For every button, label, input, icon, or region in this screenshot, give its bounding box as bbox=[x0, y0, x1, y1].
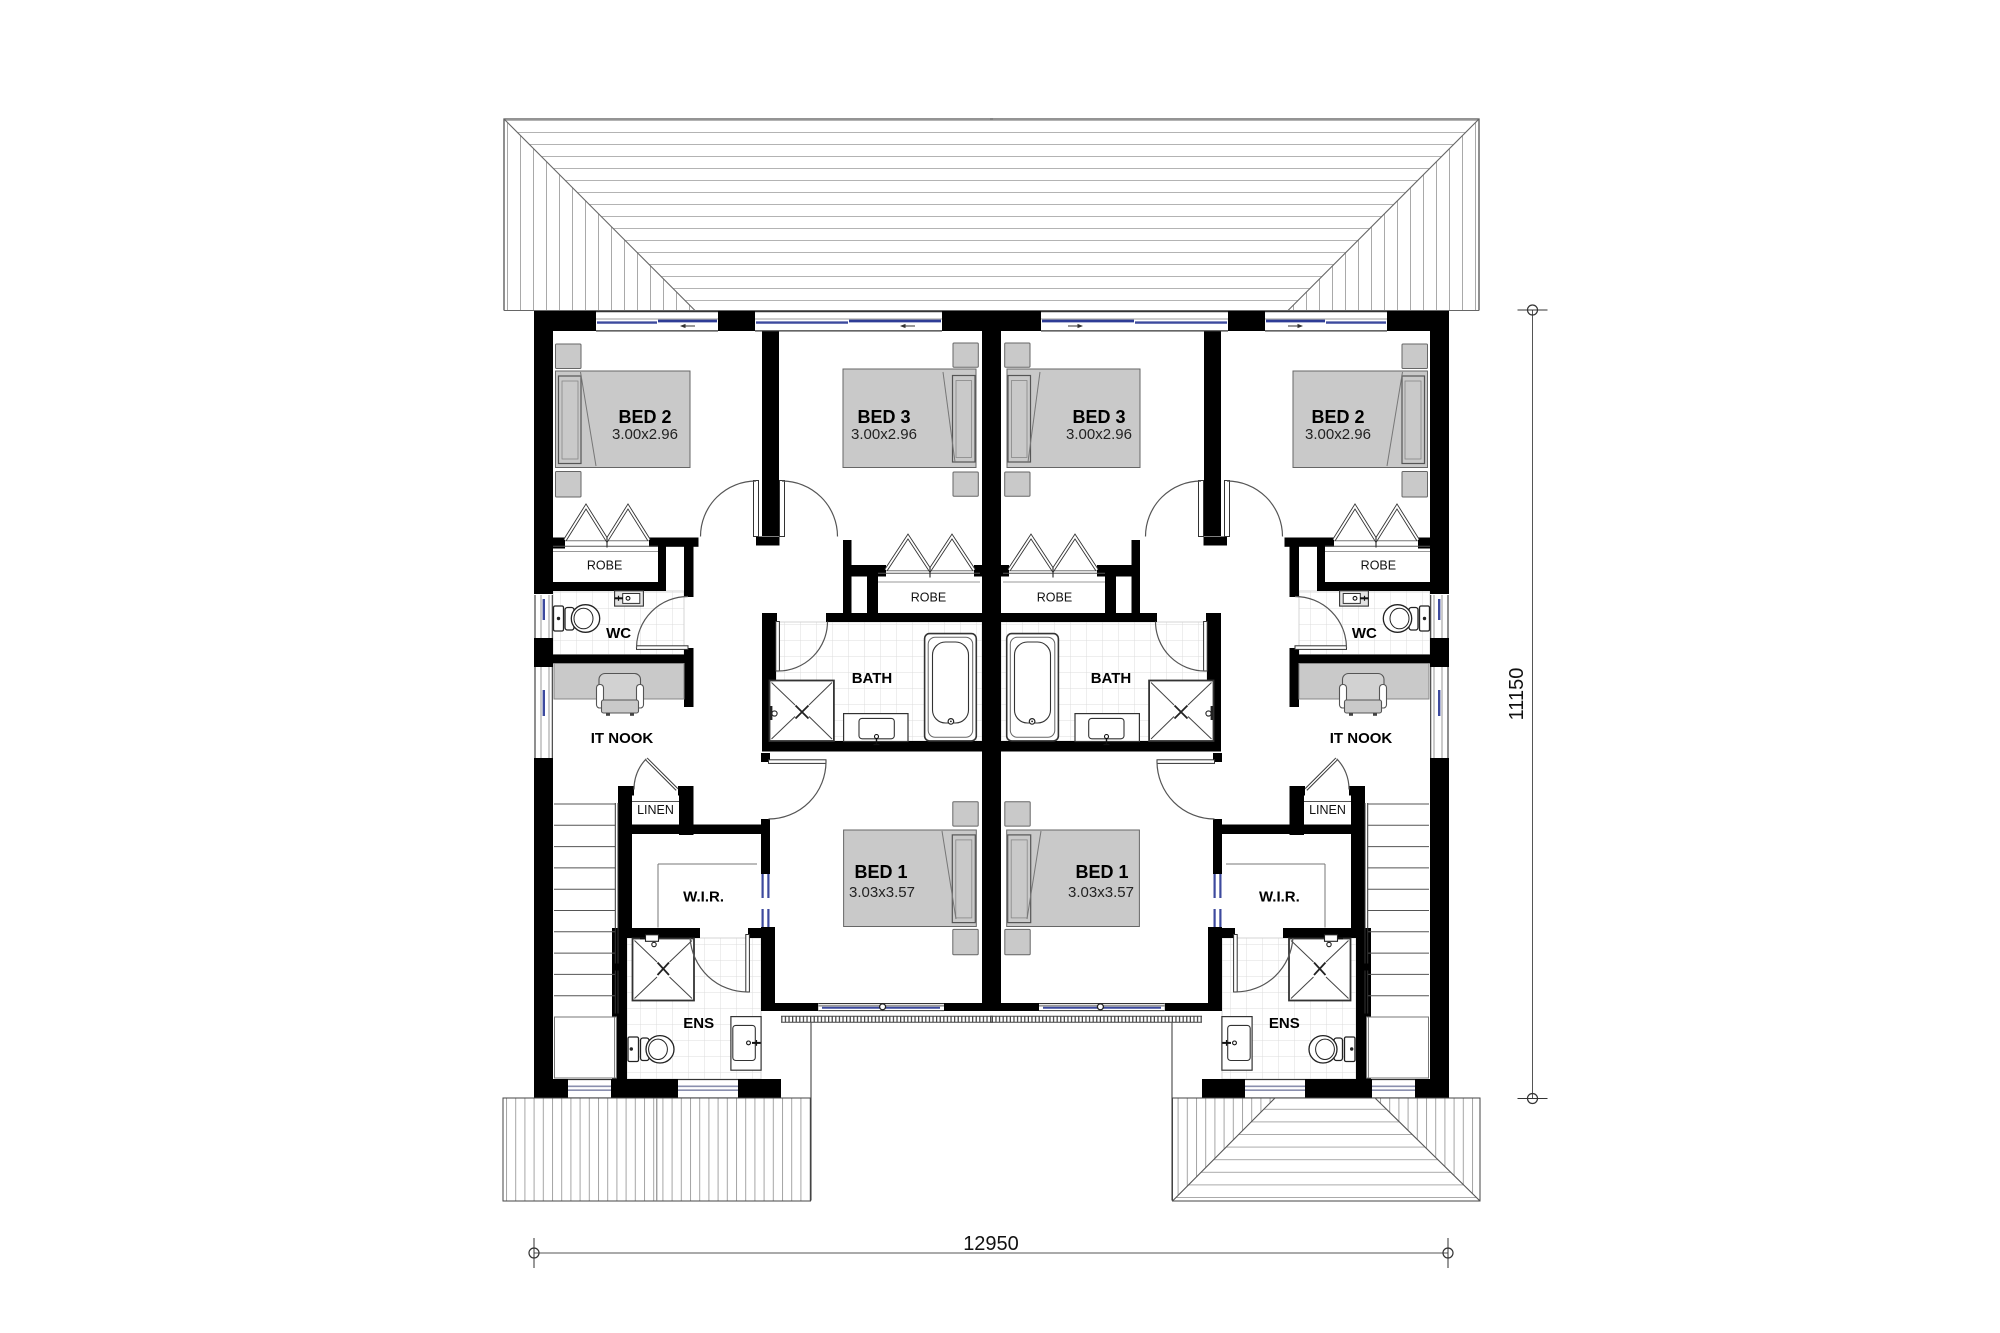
svg-text:BED 1: BED 1 bbox=[1075, 862, 1128, 882]
svg-text:12950: 12950 bbox=[963, 1233, 1019, 1255]
svg-text:ENS: ENS bbox=[1269, 1015, 1300, 1032]
svg-text:IT NOOK: IT NOOK bbox=[1330, 730, 1393, 747]
svg-text:3.03x3.57: 3.03x3.57 bbox=[849, 884, 915, 901]
svg-text:11150: 11150 bbox=[1506, 668, 1528, 721]
svg-text:BATH: BATH bbox=[1091, 670, 1132, 687]
svg-text:WC: WC bbox=[1352, 625, 1377, 642]
svg-text:3.00x2.96: 3.00x2.96 bbox=[851, 426, 917, 443]
svg-text:3.00x2.96: 3.00x2.96 bbox=[1066, 426, 1132, 443]
svg-text:ROBE: ROBE bbox=[911, 591, 946, 605]
svg-text:ROBE: ROBE bbox=[587, 559, 622, 573]
svg-text:W.I.R.: W.I.R. bbox=[683, 889, 724, 906]
svg-text:W.I.R.: W.I.R. bbox=[1259, 889, 1300, 906]
svg-text:ROBE: ROBE bbox=[1361, 559, 1396, 573]
svg-text:3.00x2.96: 3.00x2.96 bbox=[612, 426, 678, 443]
svg-text:BED 3: BED 3 bbox=[1072, 407, 1125, 427]
svg-text:LINEN: LINEN bbox=[637, 803, 674, 817]
svg-text:WC: WC bbox=[606, 625, 631, 642]
svg-text:BED 3: BED 3 bbox=[857, 407, 910, 427]
svg-text:3.03x3.57: 3.03x3.57 bbox=[1068, 884, 1134, 901]
svg-text:BATH: BATH bbox=[852, 670, 893, 687]
svg-text:ENS: ENS bbox=[683, 1015, 714, 1032]
svg-text:IT NOOK: IT NOOK bbox=[591, 730, 654, 747]
svg-text:BED 2: BED 2 bbox=[1311, 407, 1364, 427]
svg-text:BED 2: BED 2 bbox=[618, 407, 671, 427]
svg-text:3.00x2.96: 3.00x2.96 bbox=[1305, 426, 1371, 443]
svg-text:ROBE: ROBE bbox=[1037, 591, 1072, 605]
svg-text:LINEN: LINEN bbox=[1309, 803, 1346, 817]
svg-text:BED 1: BED 1 bbox=[854, 862, 907, 882]
